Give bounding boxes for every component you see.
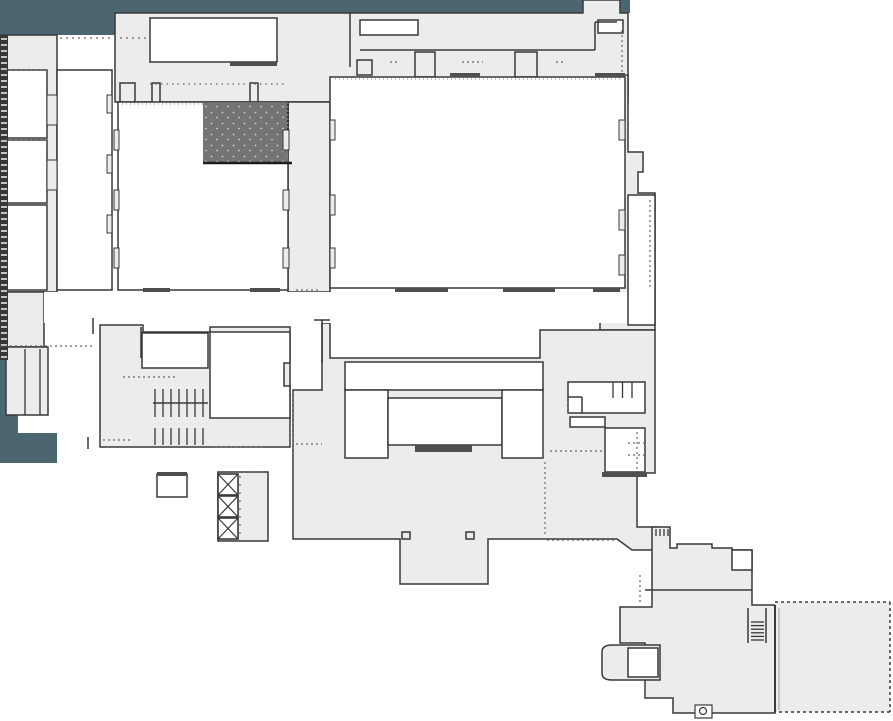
pilaster <box>619 210 625 230</box>
highlighted-gallery[interactable] <box>203 103 288 163</box>
south-bump-notch <box>466 532 474 539</box>
pilaster <box>330 195 335 215</box>
lightwell <box>57 70 112 290</box>
pilaster <box>619 120 625 140</box>
north-room-a <box>150 18 277 62</box>
pilaster <box>330 248 335 268</box>
wall-segment <box>602 472 647 477</box>
main-corridor <box>44 292 640 323</box>
east-terrace <box>775 602 890 712</box>
wall-segment <box>450 73 480 77</box>
east-corridor <box>628 195 655 325</box>
wall-segment <box>157 472 187 476</box>
south-corridor <box>345 362 543 390</box>
corridor-pier <box>152 83 160 103</box>
pilaster <box>114 248 119 268</box>
pilaster <box>283 190 289 210</box>
corridor-pier <box>120 83 135 102</box>
pilaster <box>283 248 289 268</box>
pilaster <box>330 120 335 140</box>
wall-segment <box>415 445 472 452</box>
east-small-room <box>570 417 605 427</box>
south-bump-notch <box>402 532 410 539</box>
pilaster <box>107 155 112 173</box>
pilaster <box>107 95 112 113</box>
gallery-pier <box>515 52 537 77</box>
highlight <box>203 103 292 163</box>
wall-segment <box>395 288 448 292</box>
floor-plan-canvas <box>0 0 893 721</box>
party-wall-hatch <box>0 35 8 360</box>
pilaster <box>114 190 119 210</box>
wall-segment <box>230 62 277 66</box>
wall-segment <box>595 73 625 77</box>
east-lobby-room <box>605 428 645 472</box>
pilaster <box>114 130 119 150</box>
central-corridor-strip <box>288 102 330 292</box>
closet <box>47 160 57 190</box>
southwest-room <box>210 332 290 418</box>
outside-top-left-block <box>0 0 115 35</box>
southeast-corner-room <box>732 550 752 570</box>
pilaster <box>107 215 112 233</box>
pilaster <box>619 255 625 275</box>
gallery-pier <box>415 52 435 77</box>
closet <box>47 95 57 125</box>
pilaster <box>283 130 289 150</box>
wall-segment <box>593 288 620 292</box>
porch-room <box>628 648 658 677</box>
west-room-2 <box>5 140 47 203</box>
elevator-vestibule <box>157 474 187 497</box>
east-gallery <box>330 77 625 288</box>
west-room-3 <box>5 205 47 290</box>
west-room-1 <box>5 70 47 138</box>
south-room-west <box>345 390 388 458</box>
corridor-pier <box>357 60 372 75</box>
elevators <box>218 474 238 539</box>
floor-plan-page <box>0 0 893 721</box>
wall-segment <box>143 288 170 292</box>
corridor-pier <box>250 83 258 102</box>
outside-left-wedge <box>0 414 57 463</box>
south-room-east <box>502 390 543 458</box>
stair-hall <box>142 333 208 368</box>
south-room-center <box>388 398 502 445</box>
wall-segment <box>503 288 555 292</box>
west-ramp <box>6 347 48 415</box>
north-room-b <box>360 20 418 35</box>
wall-segment <box>250 288 280 292</box>
